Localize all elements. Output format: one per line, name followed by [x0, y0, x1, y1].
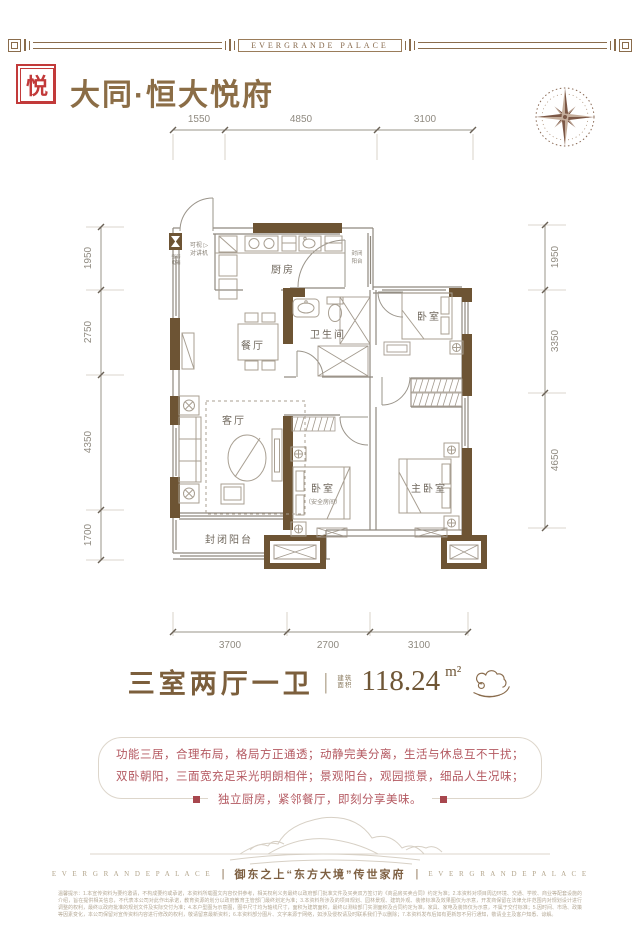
dim-bottom-3: 3100: [408, 640, 431, 651]
dim-top-2: 4850: [290, 114, 313, 125]
label-bath: 卫生间: [310, 328, 346, 341]
red-square-icon: [193, 796, 200, 803]
floor-plan: 1550 4850 3100 1950 2750 4350 1700 1950 …: [0, 100, 640, 660]
flyer-page: EVERGRANDE PALACE 悦 大同·恒大悦府: [0, 0, 640, 952]
border-right-ornament-icon: [619, 39, 632, 52]
label-master: 主卧室: [411, 482, 447, 495]
dim-left-3: 4350: [83, 430, 94, 453]
footer-separator: |: [416, 868, 419, 880]
footer-separator: |: [222, 868, 225, 880]
footer-brand-left: E V E R G R A N D E P A L A C E: [52, 870, 212, 878]
label-bedroom2: 卧室: [311, 482, 335, 495]
mountains-art: [90, 806, 550, 872]
label-bedroom1: 卧室: [417, 310, 441, 323]
walls-thin: [173, 228, 468, 559]
border-left-ornament-icon: [8, 39, 21, 52]
footer-brand-right: E V E R G R A N D E P A L A C E: [428, 870, 588, 878]
label-utility-balcony-2: 阳台: [351, 257, 363, 265]
dimension-labels: 1550 4850 3100 1950 2750 4350 1700 1950 …: [83, 114, 561, 651]
label-dining: 餐厅: [241, 339, 265, 352]
area-unit: m²: [445, 664, 461, 681]
description-line-1: 功能三居，合理布局，格局方正通透；动静完美分离，生活与休息互不干扰；: [99, 746, 541, 762]
summary-divider: |: [324, 669, 327, 695]
unit-layout: 三室两厅一卫: [128, 662, 314, 701]
description-line-2: 双卧朝阳，三面宽充足采光明朗相伴；景观阳台，观园揽景，细品人生况味；: [99, 768, 541, 784]
description-line-3-row: 独立厨房，紧邻餐厅，即刻分享美味。: [125, 791, 515, 807]
area-label: 建筑 面积: [337, 675, 352, 689]
footer-tagline: 御东之上“东方大境”传世家府: [235, 866, 406, 882]
dim-bottom-1: 3700: [219, 640, 242, 651]
seal-character: 悦: [20, 68, 54, 102]
cloud-ornament-icon: [470, 665, 512, 699]
dim-top-3: 3100: [414, 114, 437, 125]
walls-brown: [170, 223, 487, 569]
area-value: 118.24: [361, 665, 440, 698]
top-ornamental-border: EVERGRANDE PALACE: [8, 37, 632, 53]
electric-box-icon: [169, 233, 182, 250]
label-intercom-1: 可视 ▷: [190, 241, 209, 249]
unit-summary: 三室两厅一卫 | 建筑 面积 118.24 m²: [0, 662, 640, 701]
label-utility-balcony-1: 封闭: [351, 249, 362, 257]
small-labels: （安全房间） 封闭 阳台 可视 ▷ 对讲机 强弱 电箱: [172, 241, 363, 506]
dim-top-1: 1550: [188, 114, 211, 125]
label-meter-2: 电箱: [172, 259, 181, 266]
label-balcony: 封闭阳台: [205, 533, 253, 546]
label-living: 客厅: [222, 414, 246, 427]
bay-windows: [270, 541, 481, 563]
seal-logo: 悦: [16, 64, 56, 104]
dim-bottom-2: 2700: [317, 640, 340, 651]
description-line-3: 独立厨房，紧邻餐厅，即刻分享美味。: [208, 791, 432, 807]
dim-left-1: 1950: [83, 246, 94, 269]
legal-disclaimer: 温馨提示：1.本宣传资料为要约邀请，不构成要约或承诺，本资料所载图文内容仅供参考…: [58, 891, 582, 919]
dim-right-3: 4650: [550, 448, 561, 471]
border-brand-text: EVERGRANDE PALACE: [238, 39, 402, 52]
red-square-icon: [440, 796, 447, 803]
label-intercom-2: 对讲机: [190, 249, 208, 257]
wardrobes: [292, 379, 462, 431]
description-box: 功能三居，合理布局，格局方正通透；动静完美分离，生活与休息互不干扰； 双卧朝阳，…: [98, 737, 542, 799]
footer-tagline-row: E V E R G R A N D E P A L A C E | 御东之上“东…: [0, 866, 640, 882]
dim-left-4: 1700: [83, 523, 94, 546]
dim-right-1: 1950: [550, 245, 561, 268]
label-kitchen: 厨房: [271, 263, 295, 276]
dim-left-2: 2750: [83, 320, 94, 343]
dim-right-2: 3350: [550, 329, 561, 352]
label-bedroom2-note: （安全房间）: [305, 498, 341, 506]
